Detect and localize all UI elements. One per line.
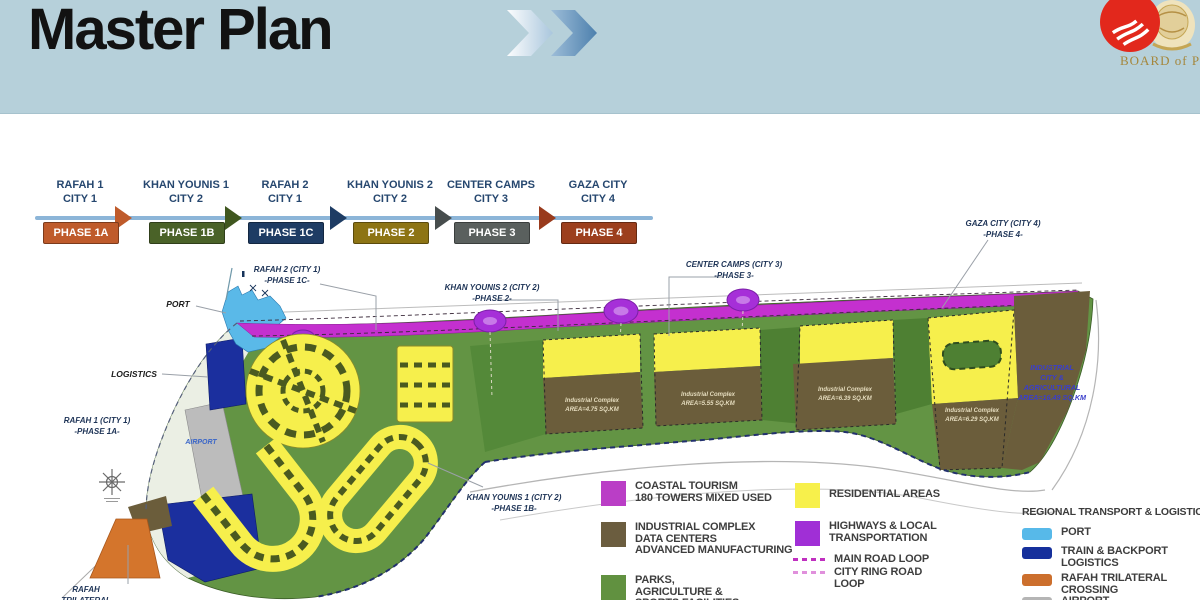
svg-text:-PHASE 1A-: -PHASE 1A- — [74, 427, 120, 436]
slide: PORT LOGISTICS AIRPORT RAFAH 1 (CITY 1) … — [0, 0, 1200, 600]
legend-label: CITY RING ROAD LOOP — [834, 567, 922, 590]
legend-label: MAIN ROAD LOOP — [834, 554, 929, 566]
stage-city-label: GAZA CITY CITY 4 — [528, 178, 668, 206]
phase-badge-1a: PHASE 1A — [43, 222, 119, 244]
legend-label: AIRPORT — [1061, 596, 1109, 600]
legend-item-main-road-loop: MAIN ROAD LOOP — [793, 554, 929, 566]
svg-text:KHAN YOUNIS 2 (CITY 2): KHAN YOUNIS 2 (CITY 2) — [445, 283, 540, 292]
svg-text:RAFAH 2 (CITY 1): RAFAH 2 (CITY 1) — [254, 265, 321, 274]
port-swatch — [1022, 528, 1052, 540]
legend-item-airport: AIRPORT — [1022, 596, 1109, 600]
legend-item-train-backport: TRAIN & BACKPORT LOGISTICS — [1022, 546, 1168, 569]
map-label-rafah2: RAFAH 2 (CITY 1) -PHASE 1C- — [254, 265, 321, 285]
map-label-gazacity: GAZA CITY (CITY 4) -PHASE 4- — [966, 219, 1041, 239]
map-label-airport: AIRPORT — [184, 439, 217, 446]
map-label-rafah-crossing: RAFAH TRILATERAL — [61, 585, 111, 600]
compass-icon — [99, 469, 125, 502]
phase-badge-2: PHASE 2 — [353, 222, 429, 244]
map-label-khanyounis1: KHAN YOUNIS 1 (CITY 2) -PHASE 1B- — [467, 493, 562, 513]
legend-label: PORT — [1061, 527, 1091, 539]
organization-logo: BOARD of P — [1090, 0, 1200, 85]
legend-label: RESIDENTIAL AREAS — [829, 483, 940, 501]
parks-swatch — [601, 575, 626, 600]
svg-text:-PHASE 1C-: -PHASE 1C- — [264, 276, 310, 285]
logo-red-circle-icon — [1100, 0, 1160, 52]
svg-text:-PHASE 3-: -PHASE 3- — [714, 271, 754, 280]
crossing-swatch — [1022, 574, 1052, 586]
transport-legend-title: REGIONAL TRANSPORT & LOGISTICS — [1022, 506, 1200, 518]
svg-text:CITY &: CITY & — [1040, 373, 1063, 382]
highways-swatch — [795, 521, 820, 546]
timeline-stage-gazacity: GAZA CITY CITY 4 — [528, 178, 668, 206]
legend-label: HIGHWAYS & LOCAL TRANSPORTATION — [829, 521, 937, 544]
svg-text:-PHASE 1B-: -PHASE 1B- — [491, 504, 537, 513]
map-label-rafah1: RAFAH 1 (CITY 1) -PHASE 1A- — [64, 416, 131, 436]
svg-text:RAFAH: RAFAH — [72, 585, 100, 594]
svg-text:AREA=6.29 SQ.KM: AREA=6.29 SQ.KM — [944, 417, 1000, 423]
timeline-arrow-icon — [225, 206, 242, 230]
main-road-dash-swatch — [793, 558, 825, 561]
legend-item-industrial-complex: INDUSTRIAL COMPLEX DATA CENTERS ADVANCED… — [601, 522, 792, 557]
legend-item-rafah-crossing: RAFAH TRILATERAL CROSSING — [1022, 573, 1167, 596]
phase-badge-1c: PHASE 1C — [248, 222, 324, 244]
svg-text:INDUSTRIAL: INDUSTRIAL — [1030, 363, 1074, 372]
svg-text:Industrial Complex: Industrial Complex — [818, 387, 873, 393]
header-band: Master Plan — [0, 0, 1200, 114]
coastal-tourism-swatch — [601, 481, 626, 506]
residential-swatch — [795, 483, 820, 508]
svg-text:Industrial Complex: Industrial Complex — [565, 398, 620, 404]
legend-item-highways: HIGHWAYS & LOCAL TRANSPORTATION — [795, 521, 937, 546]
svg-text:AREA=4.75 SQ.KM: AREA=4.75 SQ.KM — [564, 407, 620, 413]
train-swatch — [1022, 547, 1052, 559]
legend-item-parks: PARKS, AGRICULTURE & SPORTS FACILITIES — [601, 575, 739, 600]
svg-text:AREA=5.55 SQ.KM: AREA=5.55 SQ.KM — [680, 401, 736, 407]
timeline-arrow-icon — [539, 206, 556, 230]
legend-label: INDUSTRIAL COMPLEX DATA CENTERS ADVANCED… — [635, 522, 792, 557]
residential-circle — [246, 334, 360, 448]
legend-item-coastal-tourism: COASTAL TOURISM 180 TOWERS MIXED USED — [601, 481, 772, 506]
industrial-complex-swatch — [601, 522, 626, 547]
phase-badge-1b: PHASE 1B — [149, 222, 225, 244]
timeline-arrow-icon — [330, 206, 347, 230]
phase-badge-4: PHASE 4 — [561, 222, 637, 244]
svg-text:CENTER CAMPS (CITY 3): CENTER CAMPS (CITY 3) — [686, 260, 783, 269]
legend-label: PARKS, AGRICULTURE & SPORTS FACILITIES — [635, 575, 739, 600]
legend-item-city-ring-road: CITY RING ROAD LOOP — [793, 567, 922, 590]
svg-text:GAZA CITY (CITY 4): GAZA CITY (CITY 4) — [966, 219, 1041, 228]
logo-text: BOARD of P — [1120, 53, 1200, 69]
timeline-arrow-icon — [435, 206, 452, 230]
legend-item-residential: RESIDENTIAL AREAS — [795, 483, 940, 508]
svg-text:KHAN YOUNIS 1 (CITY 2): KHAN YOUNIS 1 (CITY 2) — [467, 493, 562, 502]
map-label-port: PORT — [166, 299, 190, 309]
svg-text:Industrial Complex: Industrial Complex — [945, 408, 1000, 414]
svg-text:AREA=6.39 SQ.KM: AREA=6.39 SQ.KM — [817, 396, 873, 402]
ring-road-dash-swatch — [793, 571, 825, 574]
residential-block — [397, 346, 453, 422]
phase-badge-3: PHASE 3 — [454, 222, 530, 244]
legend-label: COASTAL TOURISM 180 TOWERS MIXED USED — [635, 481, 772, 504]
double-chevron-right-icon — [505, 8, 605, 63]
svg-text:TRILATERAL: TRILATERAL — [61, 596, 111, 600]
legend-item-port: PORT — [1022, 527, 1091, 540]
svg-text:AREA=16.49 SQ.KM: AREA=16.49 SQ.KM — [1017, 393, 1087, 402]
page-title: Master Plan — [28, 0, 332, 63]
svg-text:RAFAH 1 (CITY 1): RAFAH 1 (CITY 1) — [64, 416, 131, 425]
legend-label: RAFAH TRILATERAL CROSSING — [1061, 573, 1167, 596]
svg-text:-PHASE 2-: -PHASE 2- — [472, 294, 512, 303]
svg-text:Industrial Complex: Industrial Complex — [681, 392, 736, 398]
map-label-logistics: LOGISTICS — [111, 369, 157, 379]
svg-text:-PHASE 4-: -PHASE 4- — [983, 230, 1023, 239]
legend-label: TRAIN & BACKPORT LOGISTICS — [1061, 546, 1168, 569]
svg-text:AGRICULTURAL: AGRICULTURAL — [1023, 383, 1081, 392]
